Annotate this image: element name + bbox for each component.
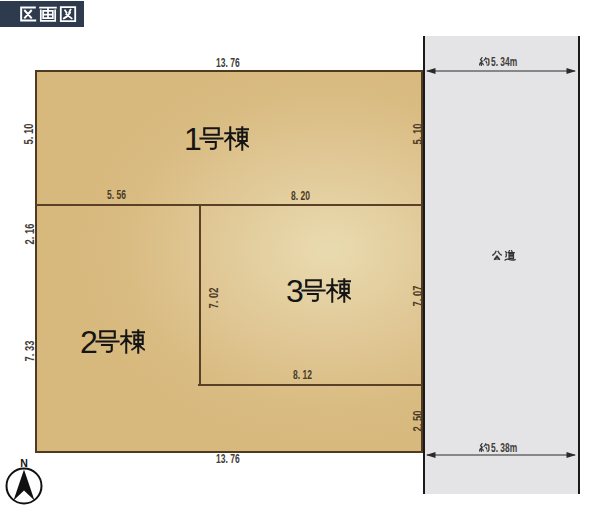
svg-text:N: N [20, 457, 28, 469]
